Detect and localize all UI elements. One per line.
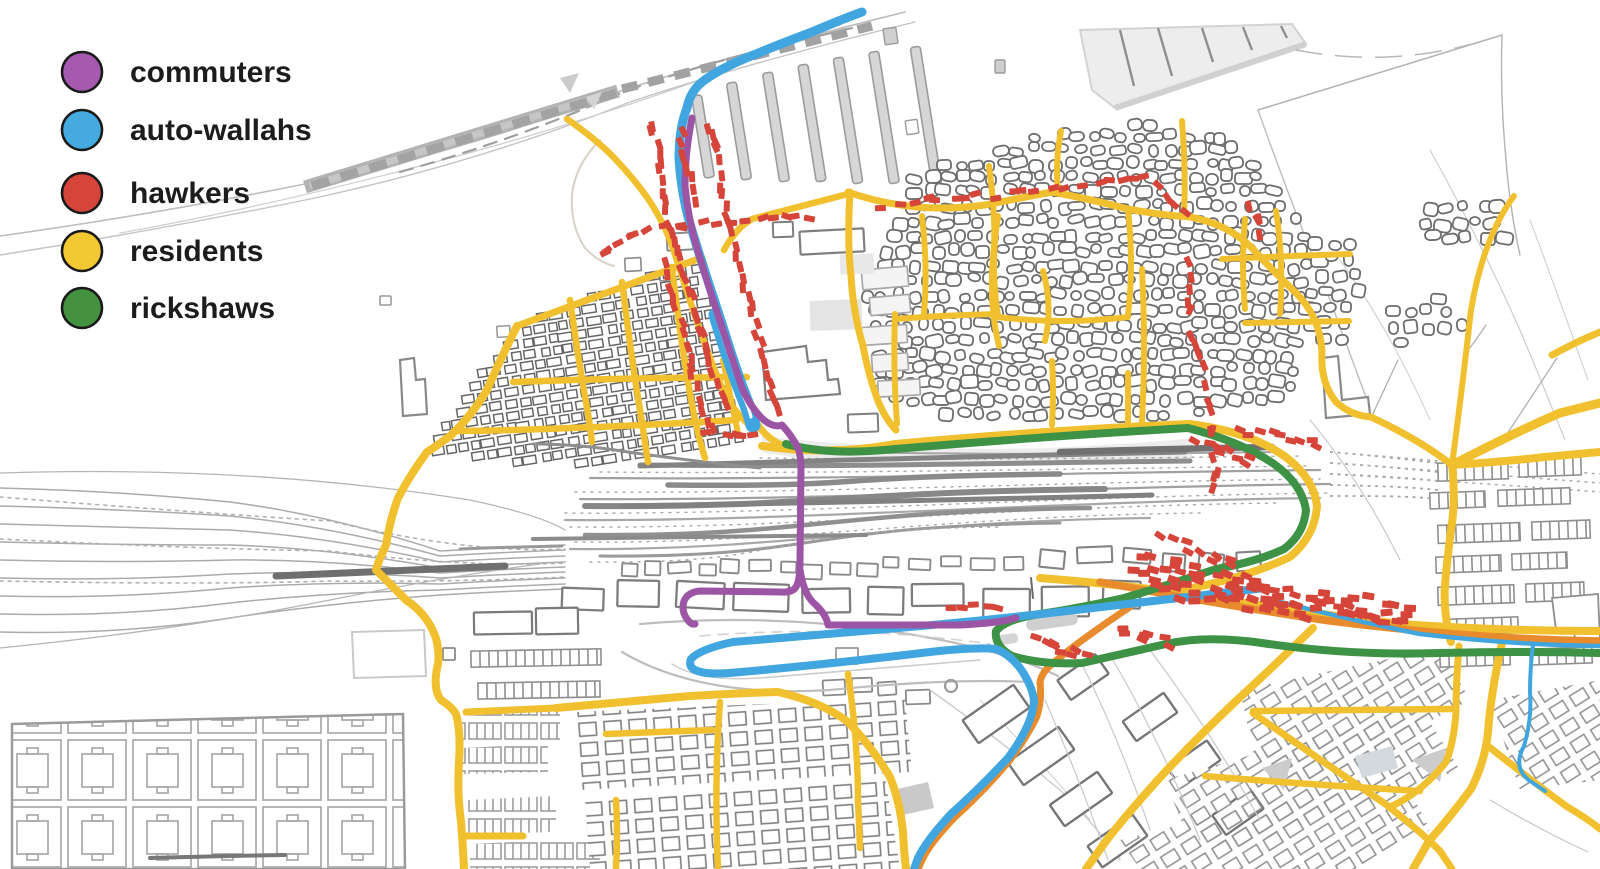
svg-text:rickshaws: rickshaws: [130, 292, 275, 325]
svg-text:residents: residents: [130, 235, 263, 268]
svg-text:auto-wallahs: auto-wallahs: [130, 114, 312, 147]
svg-text:commuters: commuters: [130, 56, 292, 89]
svg-text:hawkers: hawkers: [130, 177, 250, 210]
